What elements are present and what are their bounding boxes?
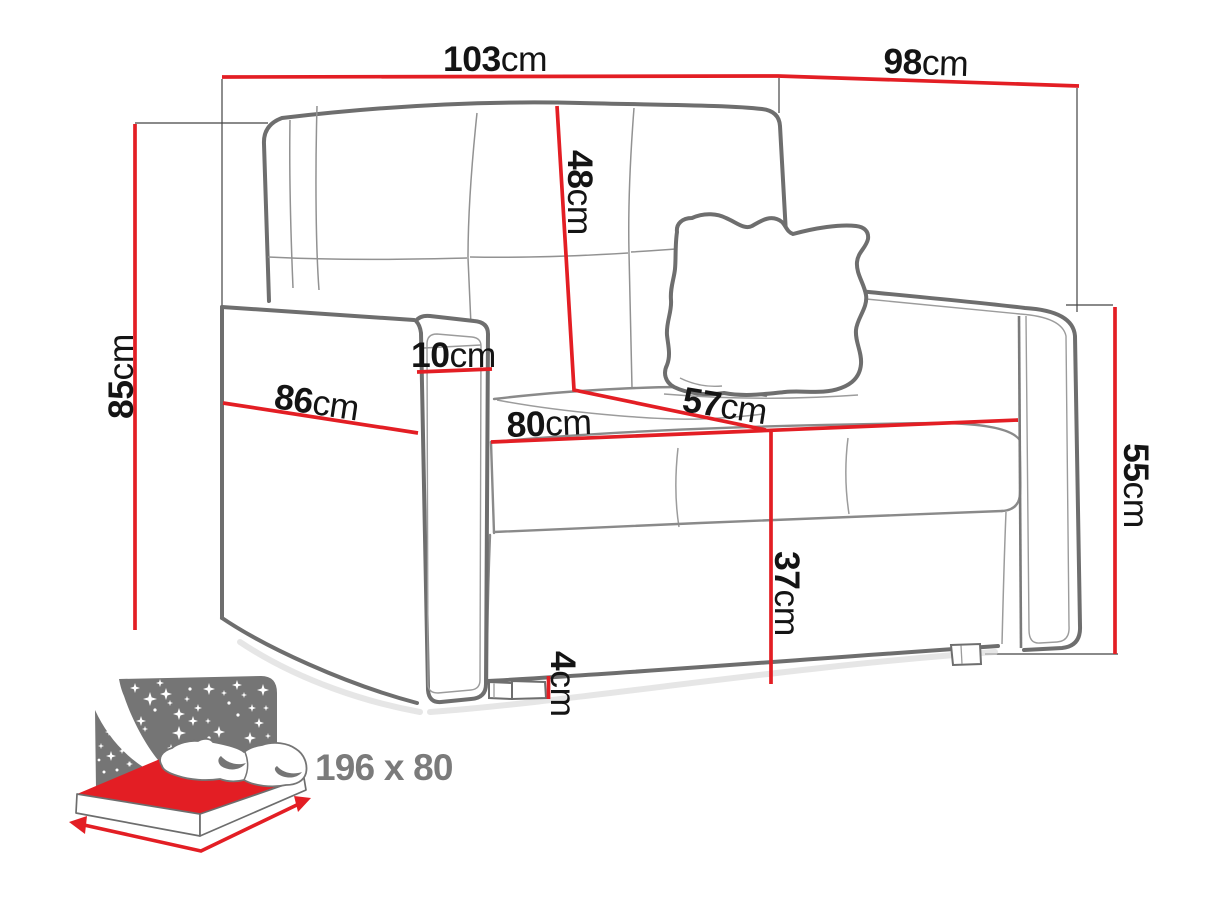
svg-text:196 x 80: 196 x 80 [315, 747, 453, 788]
svg-text:80cm: 80cm [506, 402, 592, 445]
svg-text:4cm: 4cm [543, 651, 583, 717]
svg-text:103cm: 103cm [443, 39, 547, 79]
svg-text:55cm: 55cm [1116, 443, 1156, 528]
svg-text:98cm: 98cm [883, 41, 969, 84]
svg-text:85cm: 85cm [101, 334, 141, 419]
svg-text:10cm: 10cm [411, 335, 496, 375]
svg-text:37cm: 37cm [767, 551, 807, 636]
svg-text:48cm: 48cm [560, 150, 600, 235]
